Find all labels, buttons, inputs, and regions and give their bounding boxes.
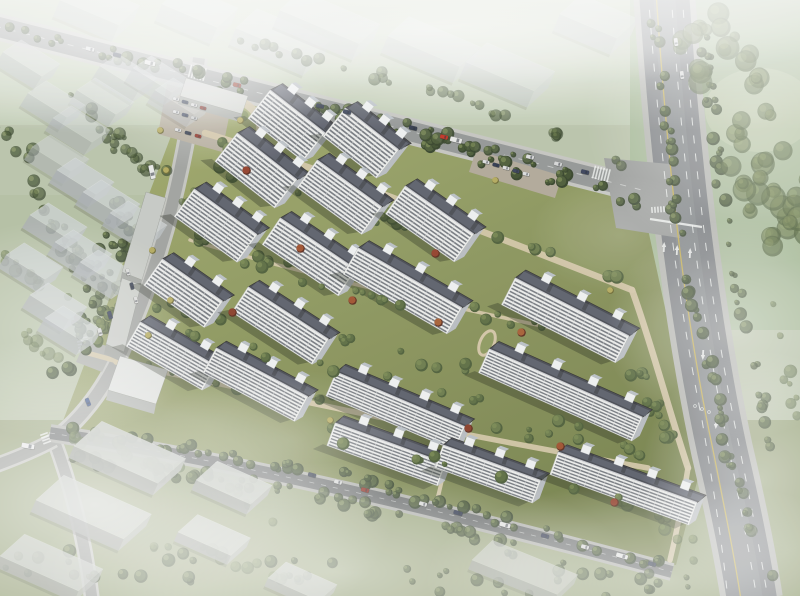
atmosphere-wash: [0, 0, 800, 596]
fog-layer: [0, 0, 800, 596]
aerial-render-canvas: [0, 0, 800, 596]
architectural-rendering: [0, 0, 800, 596]
